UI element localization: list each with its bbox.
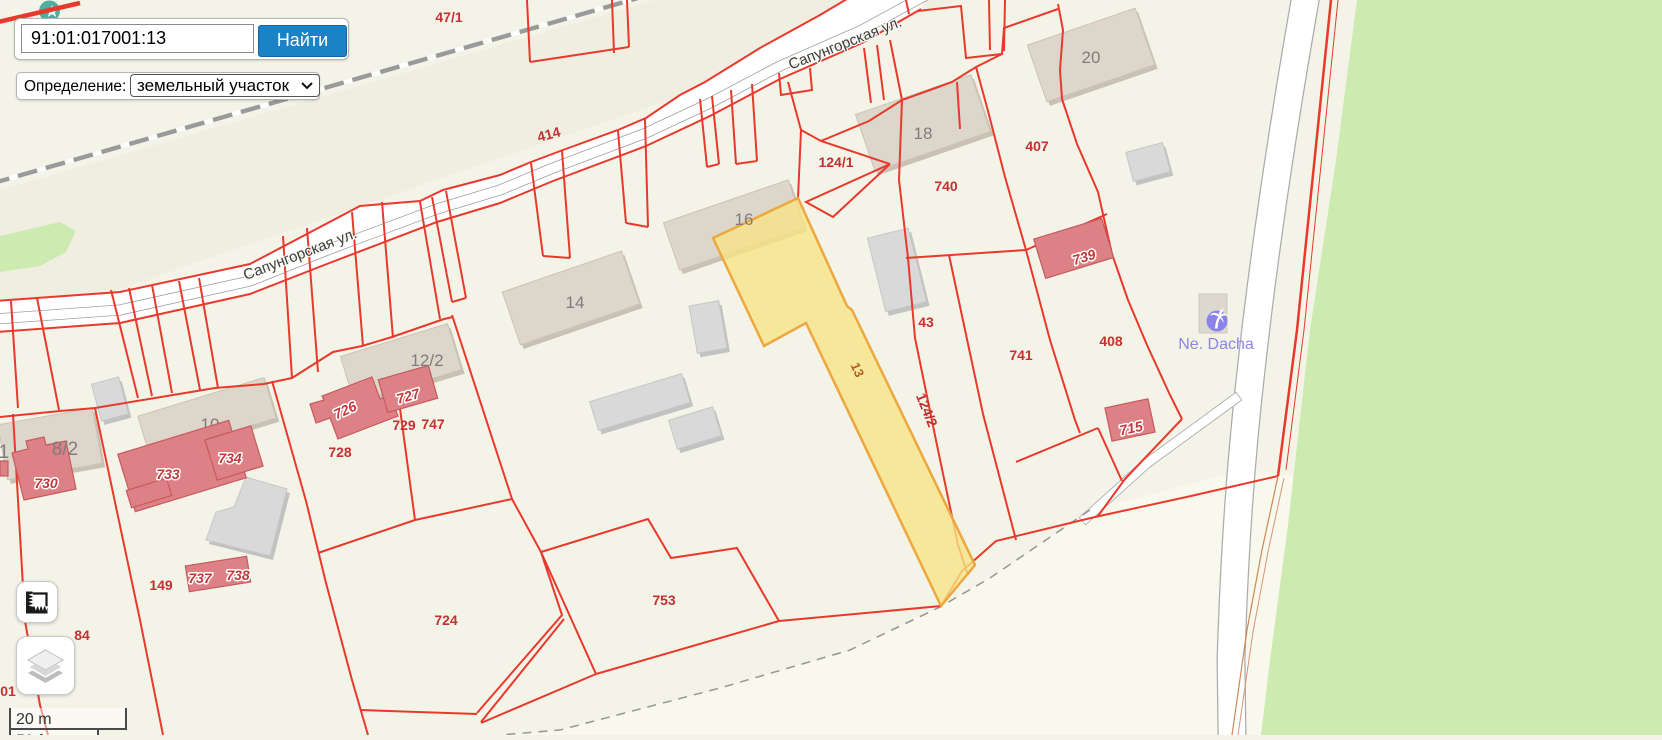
svg-text:14: 14: [566, 293, 585, 312]
svg-text:734: 734: [218, 450, 242, 466]
svg-text:84: 84: [74, 627, 90, 643]
svg-text:8/2: 8/2: [52, 439, 78, 460]
svg-text:730: 730: [34, 475, 58, 491]
svg-text:20: 20: [1082, 48, 1101, 67]
svg-text:18: 18: [914, 124, 933, 143]
svg-text:753: 753: [652, 592, 676, 608]
svg-text:408: 408: [1099, 333, 1123, 349]
svg-text:12/2: 12/2: [410, 351, 443, 370]
svg-text:20 m: 20 m: [16, 711, 52, 728]
svg-text:741: 741: [1009, 347, 1033, 363]
svg-text:733: 733: [156, 466, 180, 482]
svg-text:724: 724: [434, 612, 458, 628]
svg-text:737: 737: [188, 570, 213, 586]
svg-text:01: 01: [0, 683, 16, 699]
svg-text:738: 738: [226, 567, 250, 583]
svg-text:729: 729: [392, 417, 416, 433]
svg-text:47/1: 47/1: [435, 9, 462, 25]
svg-text:43: 43: [918, 314, 934, 330]
svg-text:124/1: 124/1: [818, 154, 853, 170]
svg-text:740: 740: [934, 178, 958, 194]
svg-text:16: 16: [735, 210, 754, 229]
svg-text:407: 407: [1025, 138, 1049, 154]
svg-text:149: 149: [149, 577, 173, 593]
svg-text:747: 747: [421, 416, 445, 432]
svg-text:Ne. Dacha: Ne. Dacha: [1178, 336, 1254, 353]
svg-text:728: 728: [328, 444, 352, 460]
svg-text:8/1: 8/1: [0, 442, 9, 463]
